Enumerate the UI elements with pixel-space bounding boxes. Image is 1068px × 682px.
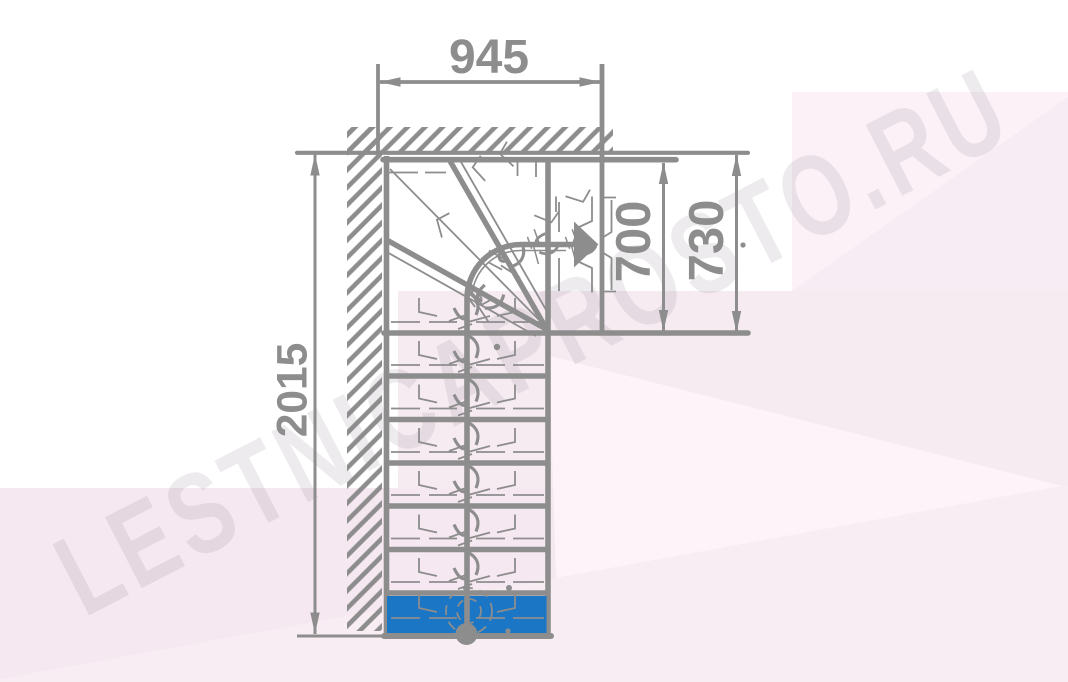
svg-text:945: 945	[449, 31, 529, 84]
svg-text:730: 730	[680, 200, 734, 282]
svg-text:700: 700	[607, 201, 661, 283]
svg-text:2015: 2015	[270, 343, 317, 438]
